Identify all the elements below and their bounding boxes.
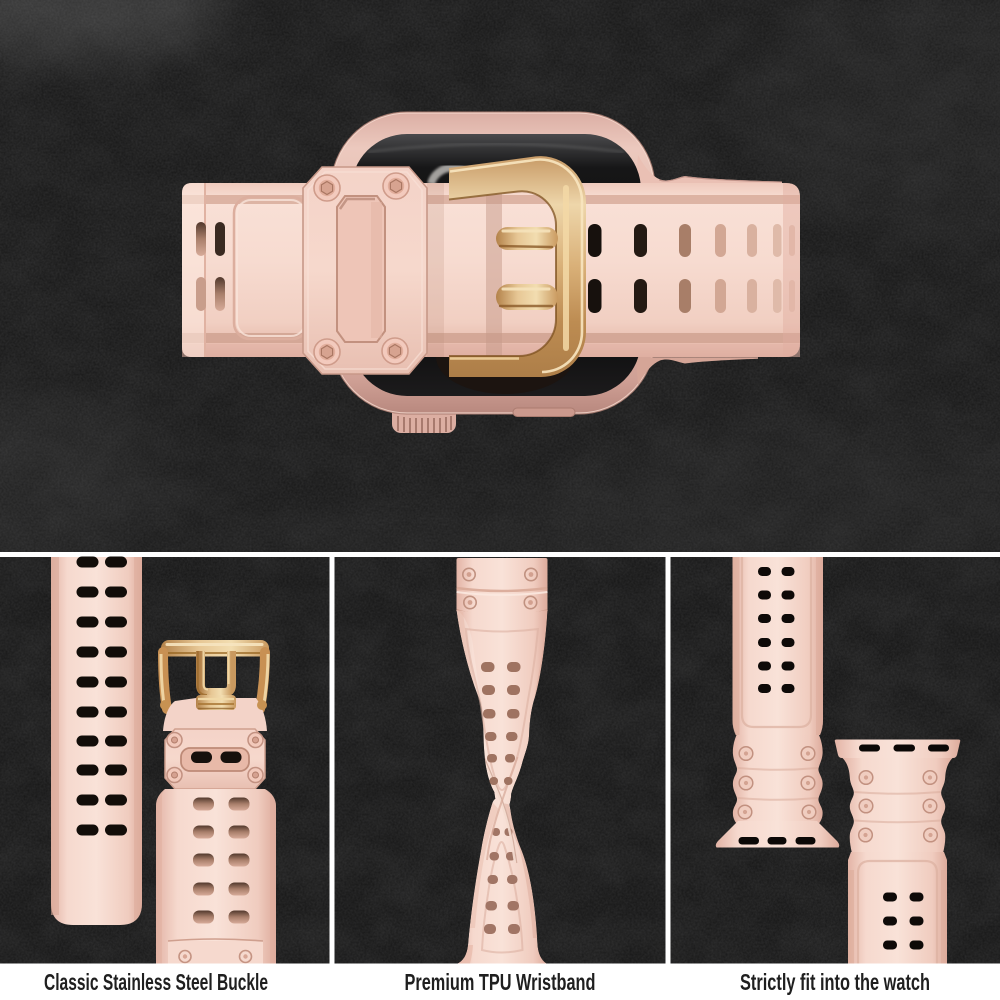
- svg-text:Premium TPU Wristband: Premium TPU Wristband: [405, 969, 596, 995]
- svg-text:Strictly fit into the watch: Strictly fit into the watch: [740, 969, 930, 995]
- svg-text:Classic Stainless Steel Buckle: Classic Stainless Steel Buckle: [44, 969, 268, 995]
